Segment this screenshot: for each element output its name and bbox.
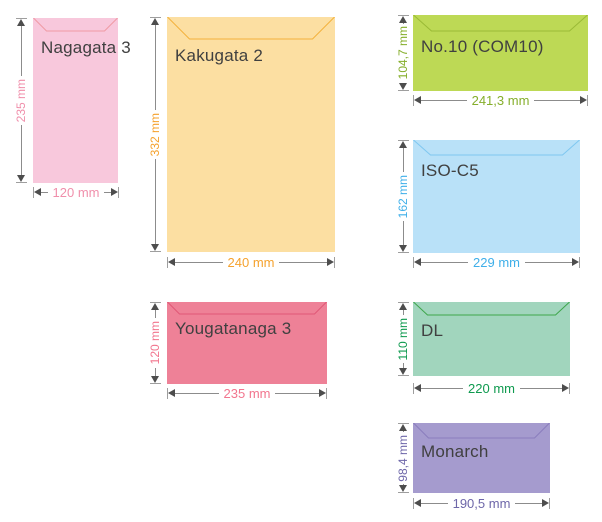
dimension-line [21,26,22,76]
envelope-iso-c5: ISO-C5 [413,140,580,253]
dimension-tick [150,383,161,384]
width-label: 235 mm [219,387,276,400]
dimension-line [155,159,156,244]
envelope-name: No.10 (COM10) [413,15,588,57]
arrow-left-icon [34,188,41,196]
envelope-dl: DL [413,302,570,376]
dimension-tick [569,383,570,394]
width-label: 240 mm [223,256,280,269]
height-dimension-iso-c5: 162 mm [390,140,416,253]
envelope-kakugata-2: Kakugata 2 [167,17,335,252]
width-label: 229 mm [468,256,525,269]
arrow-down-icon [399,83,407,90]
dimension-line [175,262,223,263]
arrow-up-icon [399,141,407,148]
height-dimension-yougatanaga-3: 120 mm [142,302,168,384]
height-dimension-kakugata-2: 332 mm [142,17,168,252]
envelope-nagagata-3: Nagagata 3 [33,18,118,183]
height-dimension-dl: 110 mm [390,302,416,376]
dimension-tick [16,182,27,183]
dimension-line [403,221,404,245]
width-label: 220 mm [463,382,520,395]
dimension-line [520,388,562,389]
dimension-tick [549,498,550,509]
arrow-right-icon [580,96,587,104]
dimension-tick [398,492,409,493]
dimension-tick [326,388,327,399]
arrow-down-icon [399,368,407,375]
width-dimension-no10-com10: 241,3 mm [413,93,588,107]
envelope-monarch: Monarch [413,423,550,493]
arrow-left-icon [414,384,421,392]
height-dimension-monarch: 98,4 mm [390,423,416,493]
arrow-left-icon [414,499,421,507]
arrow-right-icon [111,188,118,196]
height-label: 332 mm [149,110,161,159]
height-label: 235 mm [15,76,27,125]
arrow-up-icon [399,303,407,310]
envelope-name: Kakugata 2 [167,17,335,66]
dimension-line [21,125,22,175]
envelope-name: Yougatanaga 3 [167,302,327,339]
dimension-line [155,25,156,110]
height-label: 104,7 mm [397,23,409,82]
envelope-no10-com10: No.10 (COM10) [413,15,588,91]
width-dimension-nagagata-3: 120 mm [33,185,119,199]
arrow-down-icon [17,175,25,182]
dimension-tick [118,187,119,198]
arrow-right-icon [327,258,334,266]
width-dimension-kakugata-2: 240 mm [167,255,335,269]
dimension-line [279,262,327,263]
dimension-tick [398,375,409,376]
arrow-up-icon [399,424,407,431]
envelope-name: Monarch [413,423,550,462]
envelope-name: DL [413,302,570,341]
width-label: 190,5 mm [448,497,516,510]
dimension-line [515,503,542,504]
width-dimension-yougatanaga-3: 235 mm [167,386,327,400]
dimension-tick [587,95,588,106]
arrow-up-icon [399,16,407,23]
width-dimension-dl: 220 mm [413,381,570,395]
arrow-right-icon [572,258,579,266]
height-label: 98,4 mm [397,432,409,485]
dimension-tick [398,90,409,91]
height-label: 120 mm [149,318,161,367]
arrow-left-icon [414,96,421,104]
dimension-line [403,148,404,172]
arrow-up-icon [151,18,159,25]
arrow-up-icon [151,303,159,310]
dimension-line [534,100,580,101]
envelope-yougatanaga-3: Yougatanaga 3 [167,302,327,384]
envelope-name: Nagagata 3 [33,18,118,58]
dimension-line [175,393,219,394]
arrow-down-icon [151,244,159,251]
width-label: 241,3 mm [467,94,535,107]
arrow-left-icon [168,389,175,397]
width-dimension-monarch: 190,5 mm [413,496,550,510]
width-label: 120 mm [48,186,105,199]
dimension-line [155,368,156,376]
dimension-line [421,100,467,101]
envelope-name: ISO-C5 [413,140,580,181]
arrow-down-icon [151,376,159,383]
dimension-tick [334,257,335,268]
arrow-right-icon [319,389,326,397]
dimension-tick [579,257,580,268]
dimension-line [421,388,463,389]
dimension-tick [150,251,161,252]
dimension-line [421,503,448,504]
arrow-left-icon [414,258,421,266]
dimension-line [421,262,468,263]
dimension-line [525,262,572,263]
dimension-tick [398,252,409,253]
height-label: 110 mm [397,315,409,363]
arrow-down-icon [399,485,407,492]
arrow-left-icon [168,258,175,266]
dimension-line [275,393,319,394]
height-label: 162 mm [397,172,409,221]
height-dimension-nagagata-3: 235 mm [8,18,34,183]
envelope-size-diagram: Nagagata 3 235 mm 120 mm Kakugata 2 332 … [0,0,602,522]
arrow-up-icon [17,19,25,26]
arrow-down-icon [399,245,407,252]
arrow-right-icon [562,384,569,392]
arrow-right-icon [542,499,549,507]
width-dimension-iso-c5: 229 mm [413,255,580,269]
height-dimension-no10-com10: 104,7 mm [390,15,416,91]
